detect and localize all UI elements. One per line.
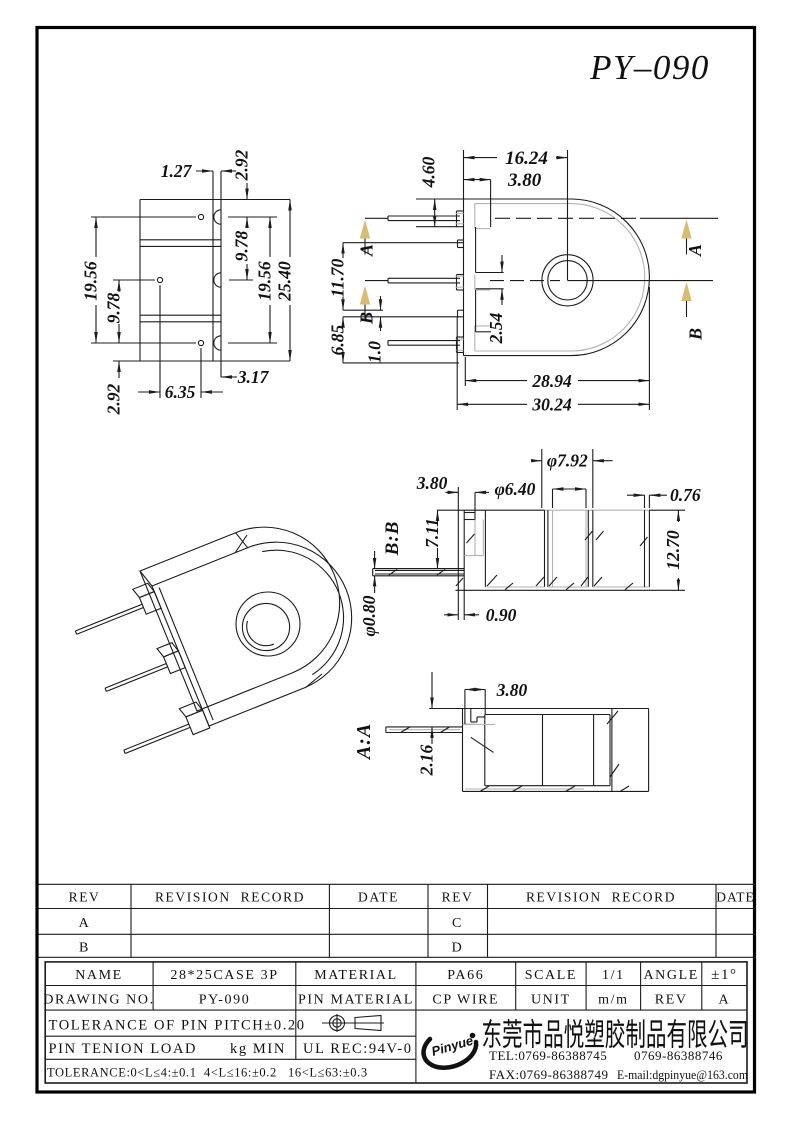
svg-text:0.76: 0.76	[670, 485, 701, 505]
svg-text:1.27: 1.27	[161, 161, 193, 181]
svg-text:PIN TENION LOAD: PIN TENION LOAD	[49, 1041, 198, 1057]
svg-text:A: A	[719, 993, 731, 1008]
svg-text:PIN MATERIAL: PIN MATERIAL	[298, 993, 414, 1008]
svg-text:2.16: 2.16	[417, 744, 437, 776]
svg-text:DRAWING NO.: DRAWING NO.	[43, 993, 154, 1008]
svg-text:B: B	[357, 312, 377, 325]
svg-text:3.80: 3.80	[416, 473, 448, 493]
svg-text:1.0: 1.0	[365, 341, 385, 363]
svg-text:A: A	[685, 244, 705, 257]
svg-text:NAME: NAME	[75, 968, 123, 983]
svg-text:PA66: PA66	[447, 968, 484, 983]
svg-text:16.24: 16.24	[505, 148, 548, 169]
svg-text:D: D	[452, 941, 464, 956]
svg-text:B:B: B:B	[382, 521, 403, 557]
svg-text:REV: REV	[69, 890, 101, 905]
svg-text:A: A	[79, 916, 91, 931]
svg-text:28*25CASE 3P: 28*25CASE 3P	[170, 968, 278, 983]
svg-text:6.35: 6.35	[165, 382, 196, 402]
svg-text:φ0.80: φ0.80	[359, 595, 379, 636]
svg-text:25.40: 25.40	[275, 261, 295, 302]
svg-text:6.85: 6.85	[328, 324, 348, 355]
svg-text:3.80: 3.80	[507, 170, 542, 191]
svg-text:TOLERANCE:0<L≤4:±0.1 4<L≤16:±: TOLERANCE:0<L≤4:±0.1 4<L≤16:±0.2 16<L≤63…	[47, 1066, 368, 1080]
svg-text:CP WIRE: CP WIRE	[432, 993, 499, 1008]
svg-text:11.70: 11.70	[328, 259, 348, 298]
svg-text:TEL:0769-86388745: TEL:0769-86388745	[489, 1048, 607, 1063]
svg-text:19.56: 19.56	[255, 261, 275, 301]
svg-text:B: B	[686, 328, 706, 341]
svg-text:30.24: 30.24	[531, 395, 572, 415]
svg-text:1/1: 1/1	[602, 968, 625, 983]
svg-text:ANGLE: ANGLE	[643, 968, 698, 983]
svg-text:UNIT: UNIT	[531, 993, 571, 1008]
svg-text:12.70: 12.70	[663, 530, 683, 570]
svg-text:PY-090: PY-090	[199, 993, 251, 1008]
svg-text:REVISION RECORD: REVISION RECORD	[526, 890, 676, 905]
svg-text:REVISION RECORD: REVISION RECORD	[155, 890, 305, 905]
svg-text:FAX:0769-86388749: FAX:0769-86388749	[489, 1067, 608, 1082]
svg-text:φ6.40: φ6.40	[495, 479, 536, 499]
svg-text:2.92: 2.92	[232, 149, 252, 181]
svg-text:0.90: 0.90	[486, 605, 517, 625]
svg-text:4.60: 4.60	[419, 156, 439, 188]
svg-text:MATERIAL: MATERIAL	[314, 968, 398, 983]
svg-text:A: A	[357, 244, 377, 257]
svg-text:9.78: 9.78	[104, 292, 124, 323]
svg-text:B: B	[79, 941, 90, 956]
svg-text:REV: REV	[655, 993, 688, 1008]
svg-text:SCALE: SCALE	[525, 968, 577, 983]
svg-text:REV: REV	[442, 890, 474, 905]
svg-text:E-mail:dgpinyue@163.com: E-mail:dgpinyue@163.com	[617, 1067, 748, 1082]
svg-text:9.78: 9.78	[232, 230, 252, 261]
svg-text:A:A: A:A	[353, 723, 375, 761]
svg-text:m/m: m/m	[598, 993, 628, 1008]
svg-text:UL REC:94V-0: UL REC:94V-0	[303, 1041, 413, 1057]
svg-text:0769-86388746: 0769-86388746	[634, 1048, 723, 1063]
svg-text:DATE: DATE	[716, 890, 755, 905]
svg-text:2.92: 2.92	[104, 383, 124, 415]
svg-text:±1°: ±1°	[711, 967, 738, 983]
svg-text:28.94: 28.94	[531, 371, 572, 391]
svg-text:PY–090: PY–090	[589, 48, 710, 87]
svg-text:φ7.92: φ7.92	[547, 451, 588, 471]
svg-text:DATE: DATE	[358, 890, 399, 905]
svg-text:C: C	[452, 916, 463, 931]
svg-text:3.80: 3.80	[496, 680, 528, 700]
svg-text:TOLERANCE OF PIN PITCH±0.20: TOLERANCE OF PIN PITCH±0.20	[49, 1018, 306, 1034]
svg-text:7.11: 7.11	[422, 518, 442, 548]
svg-text:3.17: 3.17	[237, 367, 270, 387]
svg-text:2.54: 2.54	[486, 312, 506, 344]
svg-text:kg MIN: kg MIN	[230, 1041, 286, 1057]
svg-text:19.56: 19.56	[81, 261, 101, 301]
